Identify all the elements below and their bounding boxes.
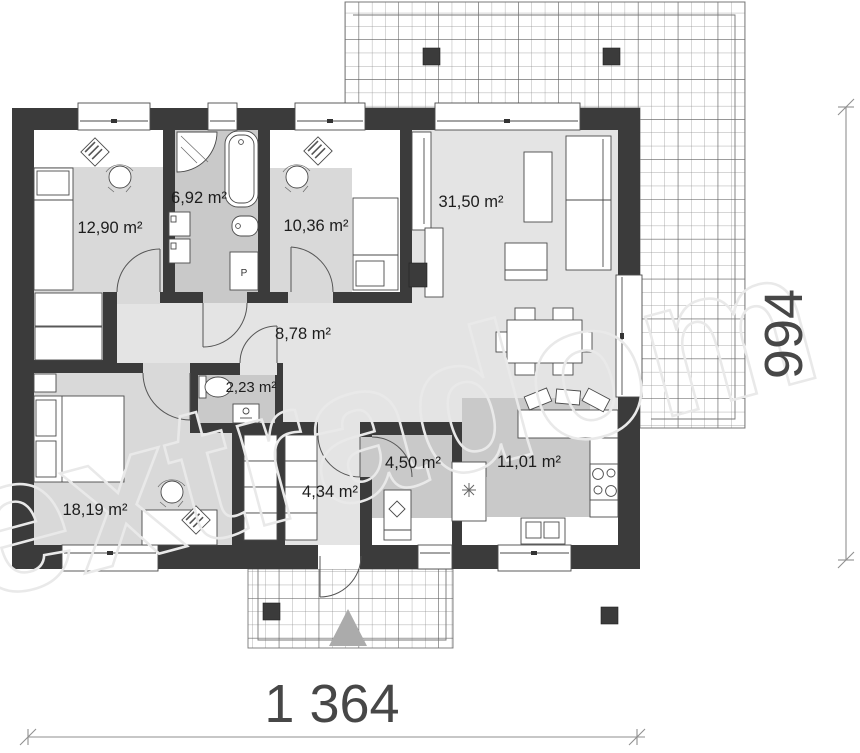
room-label: 4,34 m²: [302, 483, 358, 501]
window: [78, 103, 150, 130]
pantry-label: P: [241, 268, 248, 279]
roof-post: [423, 48, 440, 65]
width-dimension: 1 364: [264, 674, 399, 734]
porch-hatch: [248, 569, 453, 648]
roof-post: [603, 48, 620, 65]
dimension-right: 994: [754, 99, 854, 568]
garden-post: [601, 607, 618, 624]
window: [208, 103, 237, 130]
depth-dimension: 994: [754, 289, 814, 379]
tv-cabinet: [412, 132, 431, 230]
pantry-cabinet: P: [230, 252, 258, 290]
room-label: 4,50 m²: [385, 454, 441, 472]
washbasin: [232, 216, 258, 236]
kitchen-sink: [521, 518, 565, 544]
window: [498, 545, 571, 571]
room-label: 12,90 m²: [77, 219, 143, 237]
room-label: 8,78 m²: [275, 325, 331, 343]
floor-plan: P: [0, 0, 860, 753]
sofa: [566, 136, 611, 270]
single-bed: [34, 168, 73, 290]
room-label: 10,36 m²: [283, 217, 349, 235]
room-label: 6,92 m²: [171, 189, 227, 207]
window: [418, 545, 452, 569]
coffee-table: [524, 152, 552, 222]
room-label: 2,23 m²: [226, 379, 277, 396]
room-label: 31,50 m²: [438, 193, 504, 211]
room-label: 18,19 m²: [62, 501, 128, 519]
dimension-bottom: 1 364: [20, 674, 645, 745]
window: [295, 103, 365, 130]
single-bed: [353, 198, 398, 290]
floor-plan-svg: P: [0, 0, 860, 753]
bathtub: [225, 131, 258, 207]
porch-post: [263, 603, 280, 620]
room-label: 11,01 m²: [497, 453, 561, 471]
window: [435, 103, 580, 130]
nightstand: [34, 374, 56, 392]
